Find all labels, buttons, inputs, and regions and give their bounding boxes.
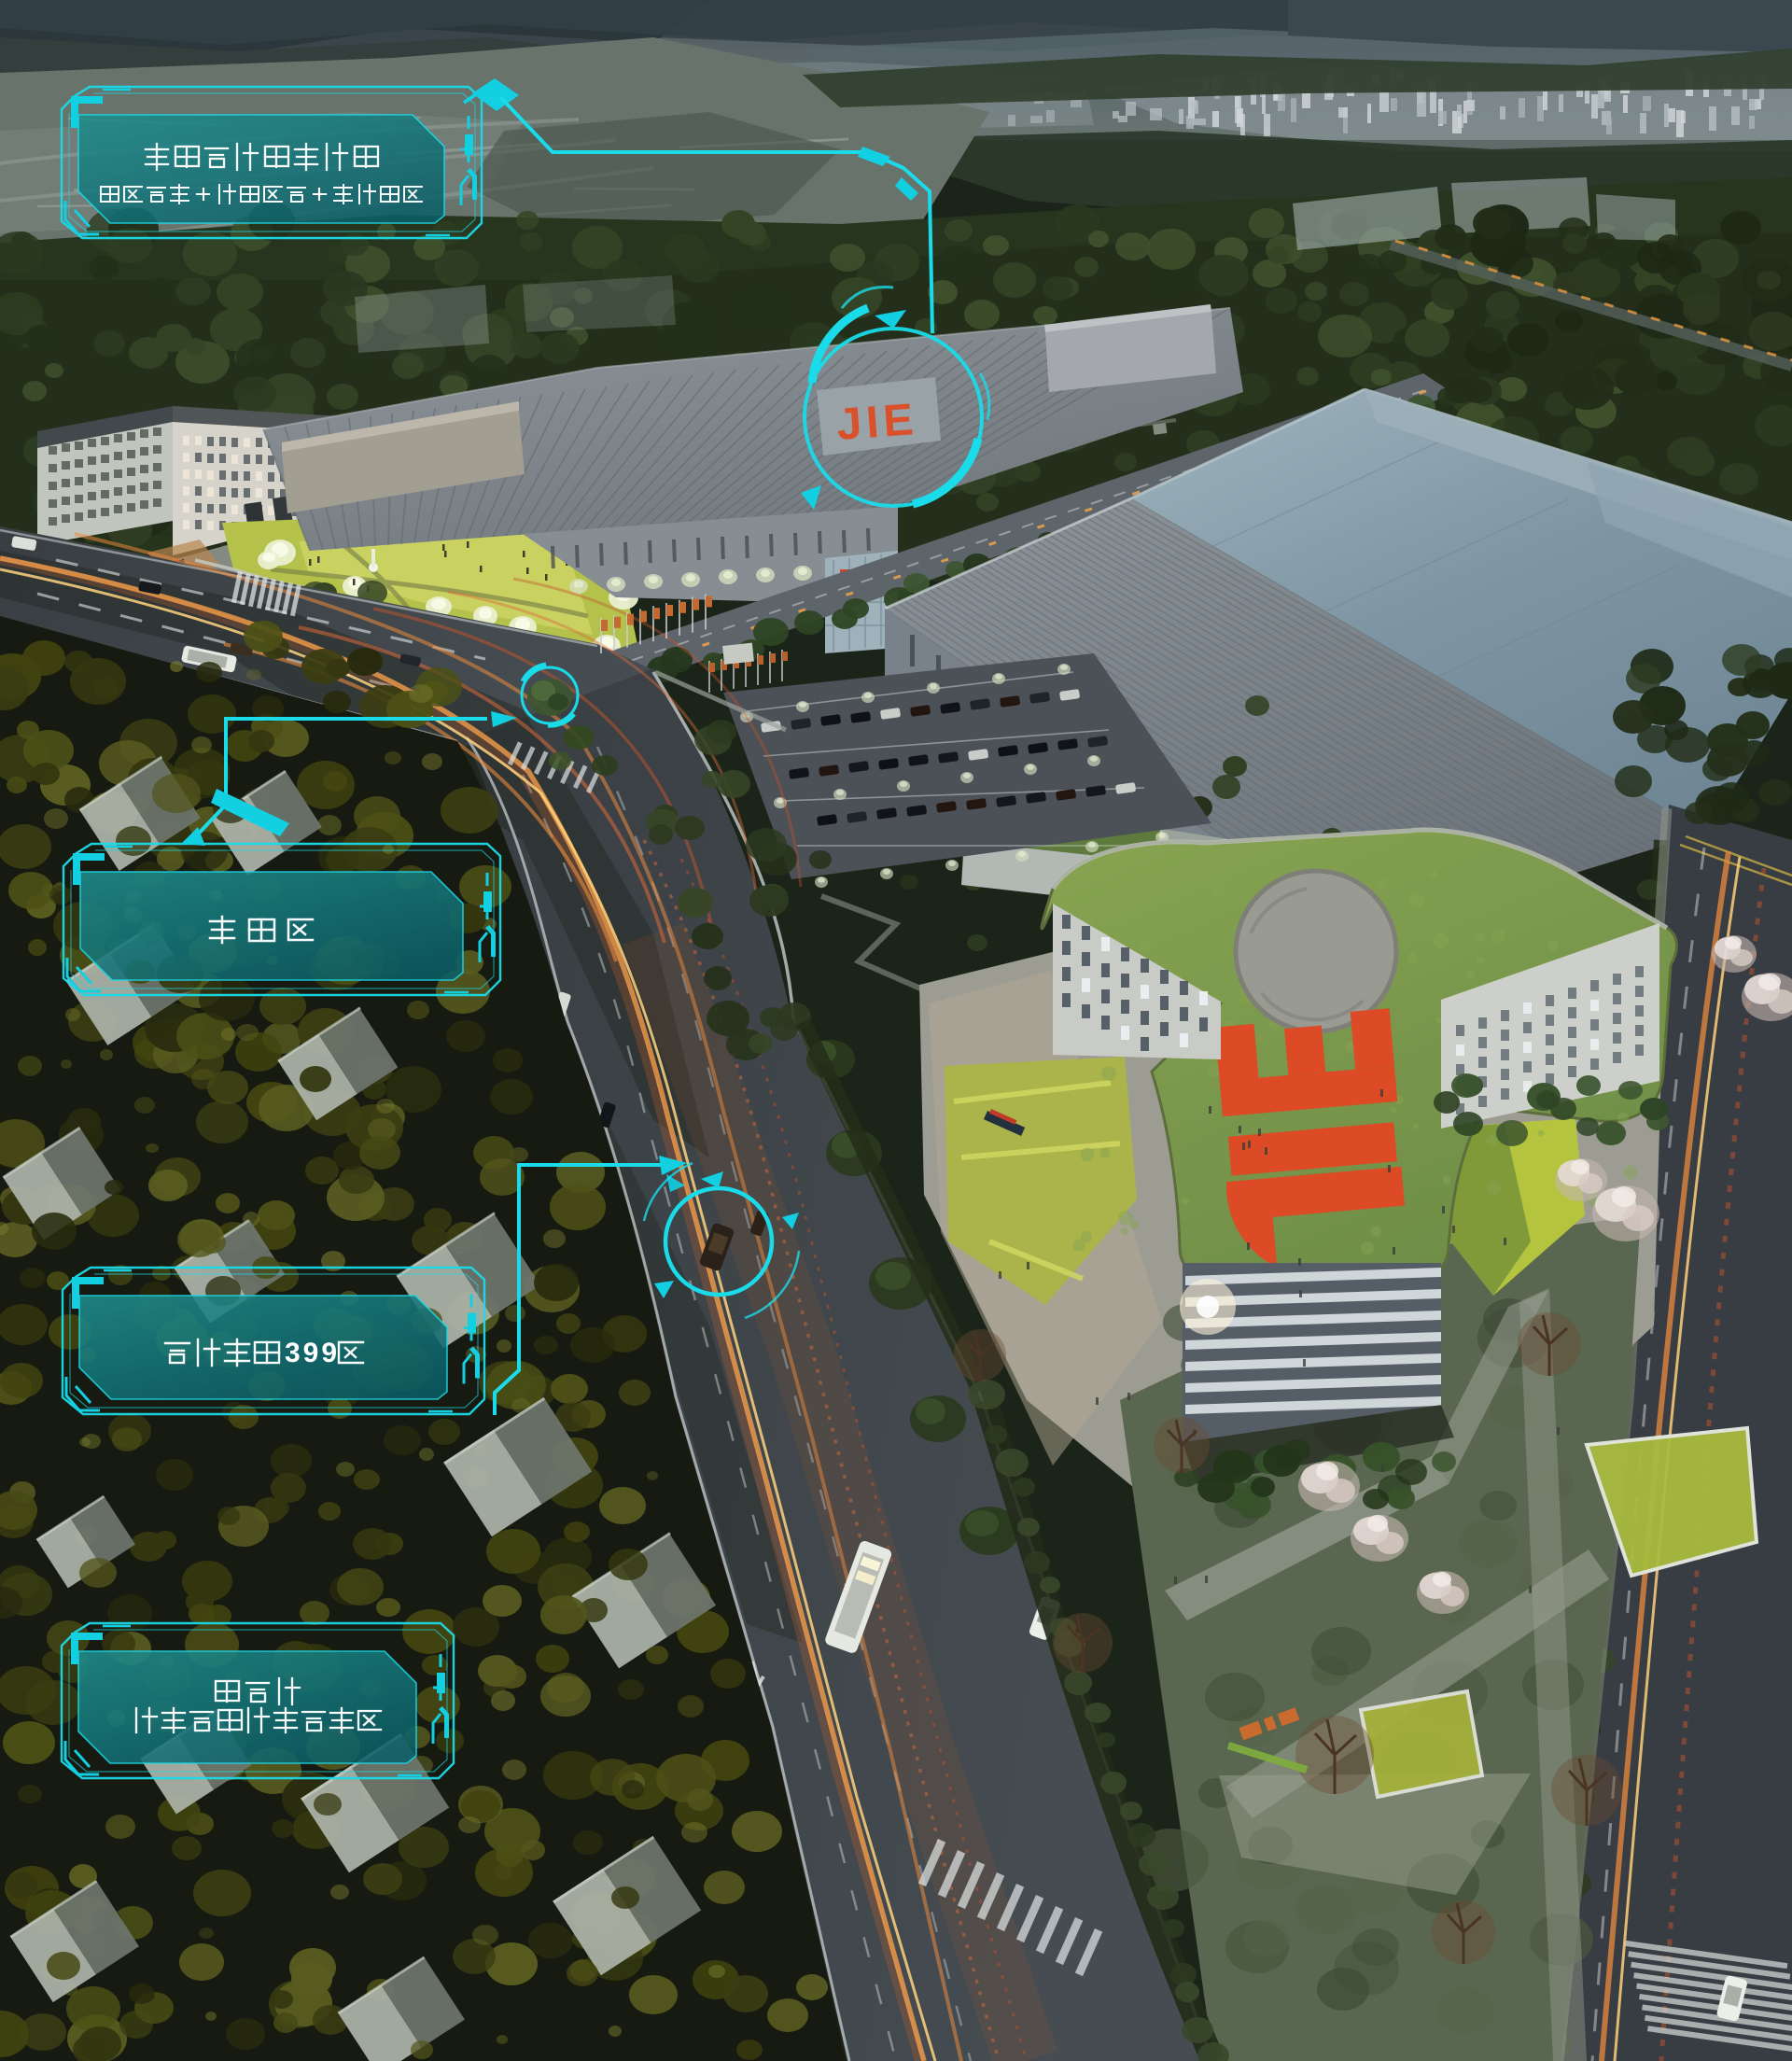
svg-text:JIE: JIE [835, 395, 920, 450]
svg-text:399: 399 [285, 1338, 340, 1368]
